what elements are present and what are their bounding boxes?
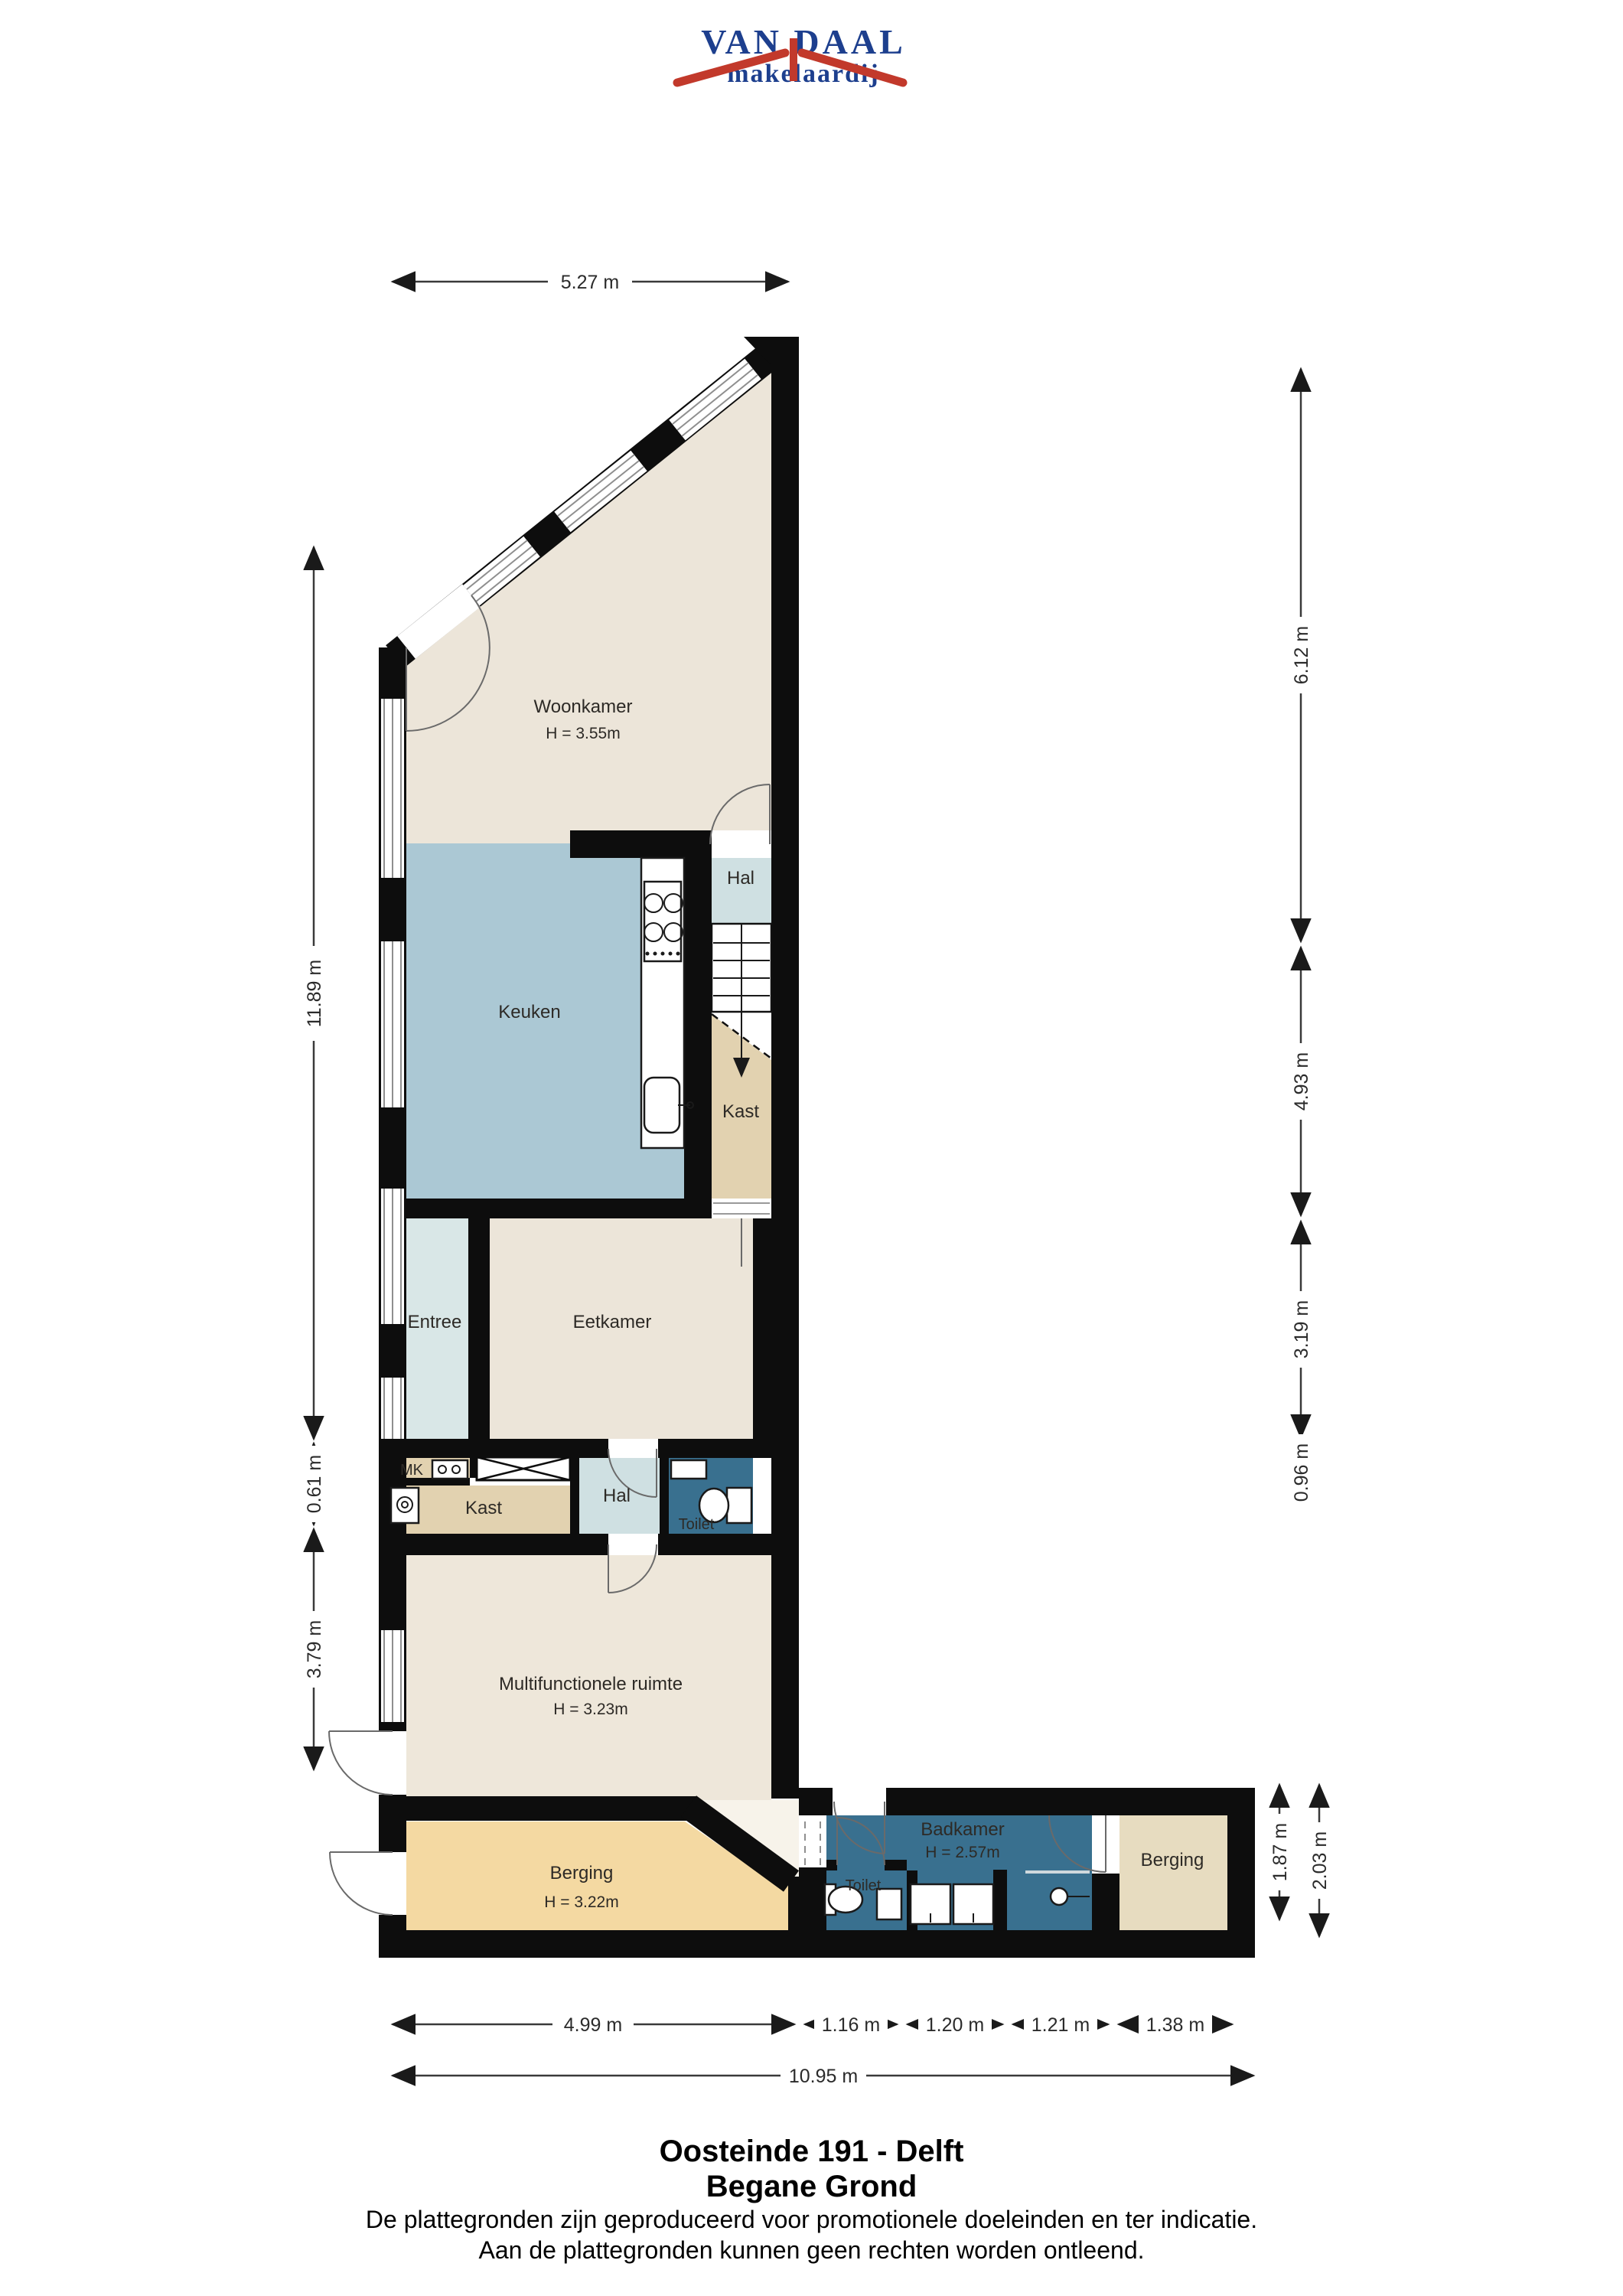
svg-text:2.03 m: 2.03 m: [1309, 1831, 1331, 1890]
svg-text:1.16 m: 1.16 m: [822, 2014, 880, 2036]
svg-text:11.89 m: 11.89 m: [304, 960, 325, 1027]
svg-text:5.27 m: 5.27 m: [561, 272, 619, 293]
wall-zuid: [379, 1930, 1255, 1958]
svg-text:3.79 m: 3.79 m: [304, 1620, 325, 1678]
svg-text:1.87 m: 1.87 m: [1269, 1823, 1291, 1881]
door-berging-links: [330, 1852, 406, 1915]
label-badkamer: Badkamer: [921, 1819, 1004, 1840]
wall-corridor-noord-b: [658, 1439, 771, 1458]
label-mk: MK: [400, 1462, 424, 1479]
wall-eetkamer-oost: [753, 1218, 771, 1439]
dim-top: 5.27 m: [393, 269, 788, 295]
dim-bottom-2: 1.16 m: [805, 2011, 897, 2037]
label-multifunctionele: Multifunctionele ruimte: [499, 1674, 683, 1694]
label-woonkamer: Woonkamer: [534, 696, 633, 717]
wall-keuken-kolom: [684, 830, 712, 1218]
svg-text:0.61 m: 0.61 m: [304, 1455, 325, 1513]
dim-bottom-1: 4.99 m: [393, 2011, 794, 2037]
wall-right: [771, 352, 799, 1799]
label-kast-boven: Kast: [722, 1101, 759, 1122]
washer-icon: [391, 1488, 419, 1523]
dim-right-3: 3.19 m: [1288, 1221, 1314, 1437]
svg-text:4.99 m: 4.99 m: [564, 2014, 622, 2036]
dim-bottom-3: 1.20 m: [908, 2011, 1002, 2037]
wall-uitbouw-noord-a: [799, 1788, 833, 1815]
footer-disclaimer-2: Aan de plattegronden kunnen geen rechten…: [0, 2235, 1623, 2265]
svg-text:6.12 m: 6.12 m: [1291, 626, 1312, 684]
wall-corridor-noord-a: [406, 1439, 608, 1458]
wall-toilet-onder-a: [826, 1860, 837, 1870]
svg-text:4.93 m: 4.93 m: [1291, 1052, 1312, 1110]
dim-br-1: 1.87 m: [1266, 1785, 1292, 1919]
wall-uitbouw-noord-b: [886, 1788, 1255, 1815]
wall-kast-hal: [570, 1458, 579, 1534]
boiler-icon: [432, 1460, 468, 1479]
label-badkamer-h: H = 2.57m: [925, 1844, 999, 1861]
label-hal-boven: Hal: [727, 868, 754, 889]
wall-doorgang: [799, 1867, 826, 1930]
footer-address: Oosteinde 191 - Delft: [0, 2134, 1623, 2169]
svg-text:10.95 m: 10.95 m: [789, 2066, 858, 2087]
stove-icon: [644, 882, 683, 961]
label-berging-links-h: H = 3.22m: [544, 1893, 618, 1911]
label-multifunctionele-h: H = 3.23m: [553, 1701, 627, 1718]
svg-text:1.21 m: 1.21 m: [1031, 2014, 1090, 2036]
dim-left-3: 3.79 m: [301, 1529, 327, 1769]
dim-bottom-4: 1.21 m: [1013, 2011, 1108, 2037]
svg-text:0.96 m: 0.96 m: [1291, 1443, 1312, 1502]
wall-corridor-zuid-a: [406, 1534, 608, 1555]
door-multifunctionele: [329, 1731, 406, 1795]
svg-text:1.38 m: 1.38 m: [1146, 2014, 1204, 2036]
dim-right-4: 0.96 m: [1288, 1434, 1314, 1511]
room-berging-rechts: [1119, 1815, 1227, 1930]
svg-text:3.19 m: 3.19 m: [1291, 1300, 1312, 1358]
wall-badkamer-berging: [1092, 1874, 1119, 1930]
floor-plan: Woonkamer H = 3.55m Keuken Hal Kast Entr…: [0, 0, 1623, 2296]
label-eetkamer: Eetkamer: [573, 1312, 652, 1332]
label-entree: Entree: [408, 1312, 462, 1332]
wall-keuken-zuid: [406, 1199, 684, 1218]
dim-right-2: 4.93 m: [1288, 947, 1314, 1215]
door-schuif: [799, 1821, 826, 1867]
dim-left-2: 0.61 m: [301, 1443, 327, 1525]
wall-entree-eetkamer: [468, 1218, 490, 1458]
label-woonkamer-h: H = 3.55m: [546, 725, 620, 742]
wall-corridor-zuid-b: [658, 1534, 771, 1555]
wall-toilet-onder-b: [885, 1860, 907, 1870]
dim-br-2: 2.03 m: [1306, 1785, 1332, 1936]
wall-berging-noord: [379, 1796, 696, 1821]
label-kast-midden: Kast: [465, 1498, 502, 1518]
label-keuken: Keuken: [498, 1002, 560, 1022]
wall-badkamer-stub: [993, 1870, 1007, 1930]
label-berging-links: Berging: [550, 1863, 614, 1883]
dim-left-1: 11.89 m: [301, 547, 327, 1439]
dim-bottom-total: 10.95 m: [393, 2063, 1253, 2089]
closet-cross-icon: [477, 1457, 570, 1480]
floorplan-page: VAN DAAL makelaardij: [0, 0, 1623, 2296]
footer: Oosteinde 191 - Delft Begane Grond De pl…: [0, 2134, 1623, 2265]
dim-bottom-5: 1.38 m: [1119, 2011, 1232, 2037]
wall-hal-toilet: [660, 1458, 669, 1534]
footer-disclaimer-1: De plattegronden zijn geproduceerd voor …: [0, 2204, 1623, 2235]
svg-text:1.20 m: 1.20 m: [926, 2014, 984, 2036]
dim-right-1: 6.12 m: [1288, 369, 1314, 941]
label-hal-midden: Hal: [603, 1486, 631, 1506]
footer-floor: Begane Grond: [0, 2169, 1623, 2204]
label-toilet-midden: Toilet: [679, 1516, 715, 1533]
shaft: [753, 1448, 771, 1534]
label-toilet-onder: Toilet: [846, 1877, 882, 1894]
label-berging-rechts: Berging: [1141, 1850, 1204, 1870]
